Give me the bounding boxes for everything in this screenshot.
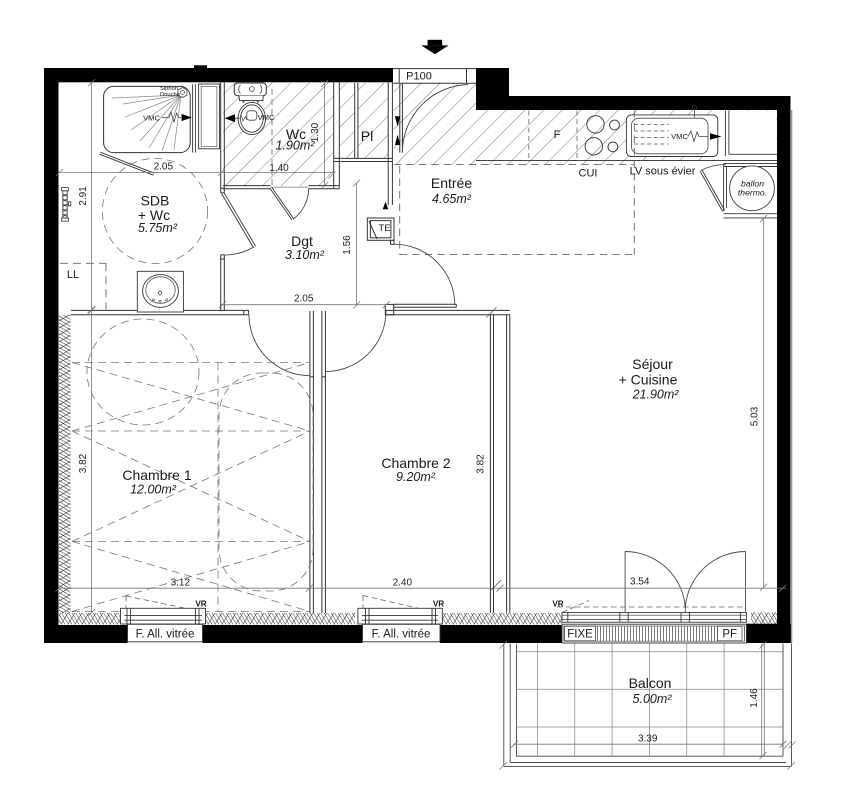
- svg-text:3.39: 3.39: [638, 734, 658, 745]
- svg-text:VR: VR: [433, 599, 444, 608]
- svg-text:5.75m²: 5.75m²: [138, 221, 178, 235]
- svg-text:1.40: 1.40: [269, 163, 289, 174]
- svg-text:9.20m²: 9.20m²: [396, 470, 436, 484]
- svg-text:2.91: 2.91: [78, 186, 89, 206]
- svg-text:PF: PF: [722, 629, 737, 641]
- svg-text:Dgt: Dgt: [291, 233, 313, 249]
- svg-text:FIXE: FIXE: [567, 629, 593, 641]
- svg-text:3.10m²: 3.10m²: [285, 248, 325, 262]
- svg-text:F. All. vitrée: F. All. vitrée: [372, 629, 431, 641]
- svg-text:Séjour: Séjour: [632, 356, 673, 372]
- svg-text:VMC: VMC: [258, 113, 275, 122]
- svg-text:1.46: 1.46: [749, 688, 760, 708]
- svg-text:2.05: 2.05: [294, 294, 314, 305]
- svg-text:F: F: [554, 129, 561, 141]
- svg-text:VMC: VMC: [143, 113, 160, 122]
- svg-text:2.05: 2.05: [154, 162, 174, 173]
- svg-text:Balcon: Balcon: [629, 675, 672, 691]
- svg-text:Chambre 2: Chambre 2: [381, 455, 450, 471]
- svg-text:12.00m²: 12.00m²: [130, 483, 177, 497]
- svg-text:5.00m²: 5.00m²: [633, 692, 673, 706]
- svg-text:3.82: 3.82: [78, 453, 89, 473]
- svg-text:3.54: 3.54: [630, 576, 650, 587]
- svg-text:LV sous évier: LV sous évier: [630, 166, 696, 178]
- svg-text:Chambre 1: Chambre 1: [122, 467, 191, 483]
- svg-text:1.56: 1.56: [342, 235, 353, 255]
- svg-text:thermo.: thermo.: [738, 188, 767, 198]
- svg-text:Pl: Pl: [361, 128, 373, 144]
- svg-text:CUI: CUI: [579, 168, 598, 180]
- svg-text:21.90m²: 21.90m²: [632, 388, 680, 402]
- svg-text:VR: VR: [195, 599, 206, 608]
- svg-text:3.82: 3.82: [475, 454, 486, 474]
- svg-text:+ Cuisine: + Cuisine: [619, 372, 678, 388]
- svg-text:F. All. vitrée: F. All. vitrée: [136, 629, 195, 641]
- svg-text:5.03: 5.03: [750, 406, 761, 426]
- svg-text:4.65m²: 4.65m²: [432, 192, 472, 206]
- svg-text:TE: TE: [378, 223, 390, 234]
- svg-text:3.12: 3.12: [171, 577, 191, 588]
- svg-text:Entrée: Entrée: [431, 175, 472, 191]
- svg-text:P100: P100: [406, 71, 432, 83]
- svg-text:VMC: VMC: [671, 132, 688, 141]
- svg-text:VR: VR: [552, 599, 563, 608]
- svg-text:1.90m²: 1.90m²: [276, 139, 316, 153]
- svg-text:LL: LL: [67, 269, 79, 281]
- svg-text:2.40: 2.40: [393, 577, 413, 588]
- svg-text:Douche: Douche: [160, 92, 180, 98]
